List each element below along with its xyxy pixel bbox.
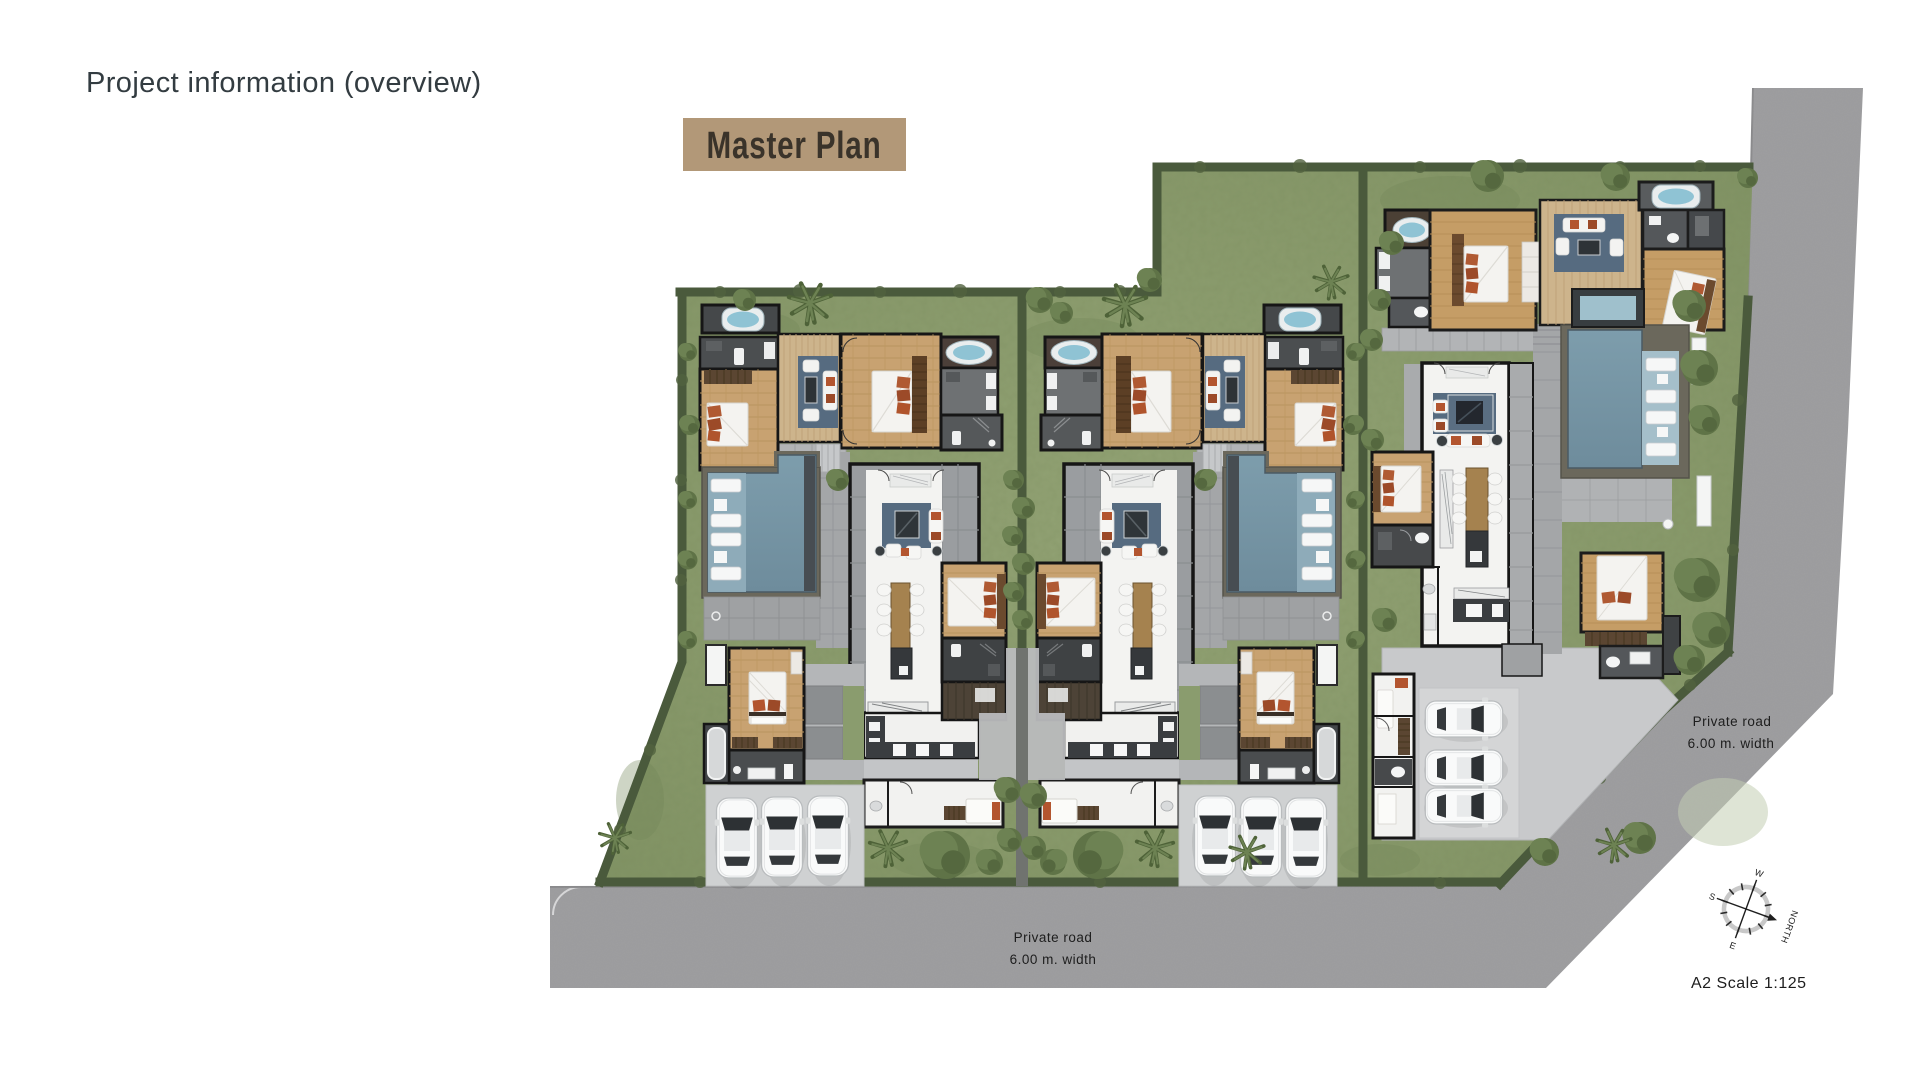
svg-text:Project information (overview): Project information (overview) [86, 67, 482, 99]
svg-text:6.00 m. width: 6.00 m. width [1688, 736, 1775, 751]
svg-text:A2 Scale 1:125: A2 Scale 1:125 [1691, 975, 1807, 992]
svg-text:6.00 m. width: 6.00 m. width [1010, 952, 1097, 967]
svg-text:Master Plan: Master Plan [707, 125, 882, 167]
svg-text:Private road: Private road [1014, 930, 1093, 945]
svg-text:Private road: Private road [1693, 714, 1772, 729]
